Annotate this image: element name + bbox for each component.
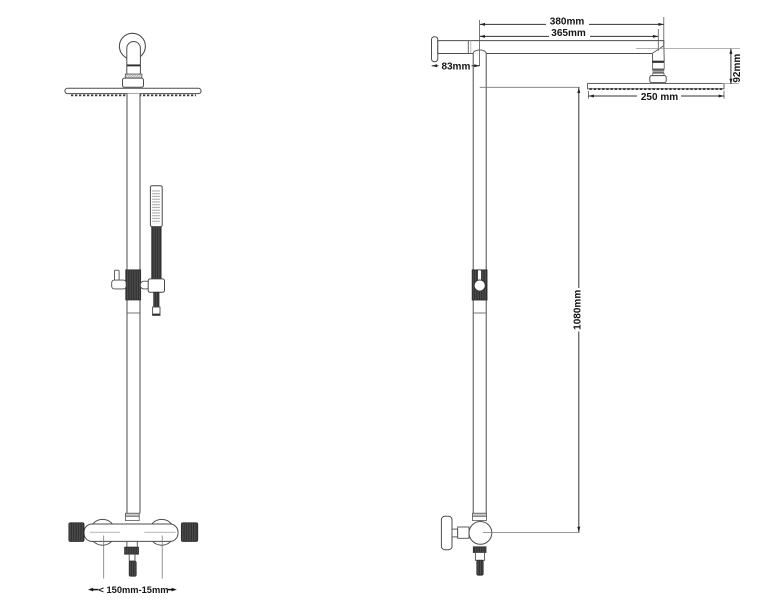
svg-text:83mm: 83mm <box>441 61 470 72</box>
svg-text:365mm: 365mm <box>551 28 586 39</box>
svg-text:1080mm: 1080mm <box>572 290 583 330</box>
svg-text:< 150mm-15mm: < 150mm-15mm <box>98 585 168 595</box>
svg-text:250 mm: 250 mm <box>641 92 678 103</box>
svg-text:92mm: 92mm <box>732 54 743 83</box>
svg-text:380mm: 380mm <box>550 17 585 28</box>
